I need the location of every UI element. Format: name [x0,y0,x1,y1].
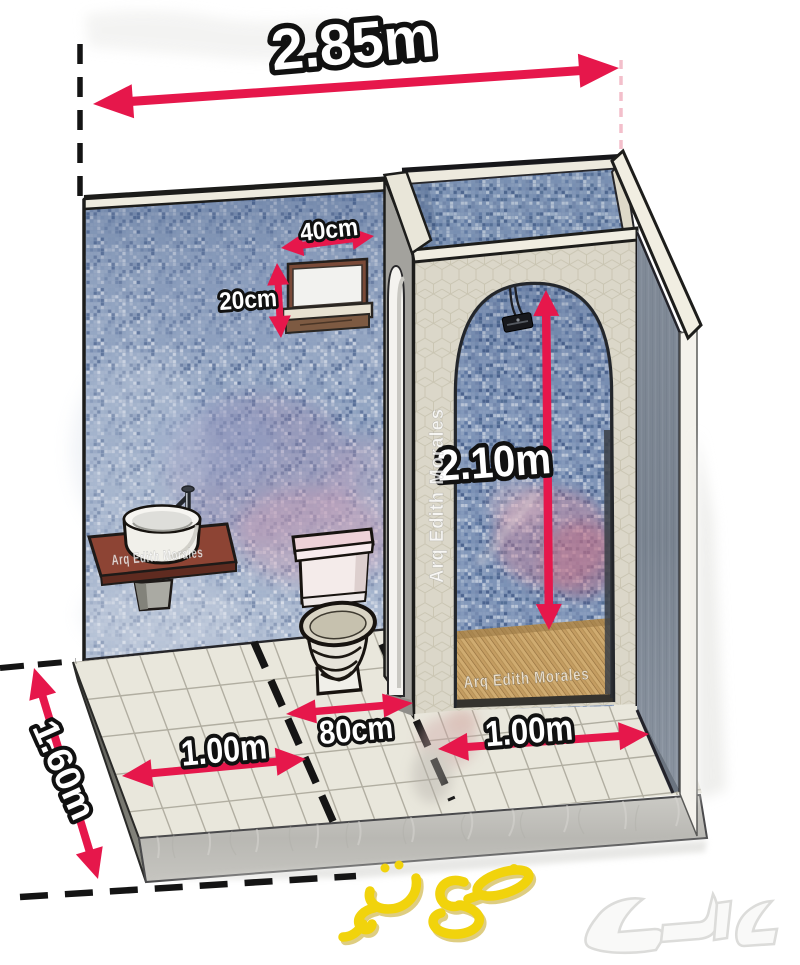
svg-text:80cm: 80cm [318,708,395,751]
svg-text:20cm: 20cm [218,284,278,316]
svg-text:1.00m: 1.00m [179,725,268,773]
svg-text:2.10m: 2.10m [436,434,553,491]
svg-text:Arq Edith Morales: Arq Edith Morales [427,408,448,583]
svg-text:1.00m: 1.00m [483,707,574,755]
